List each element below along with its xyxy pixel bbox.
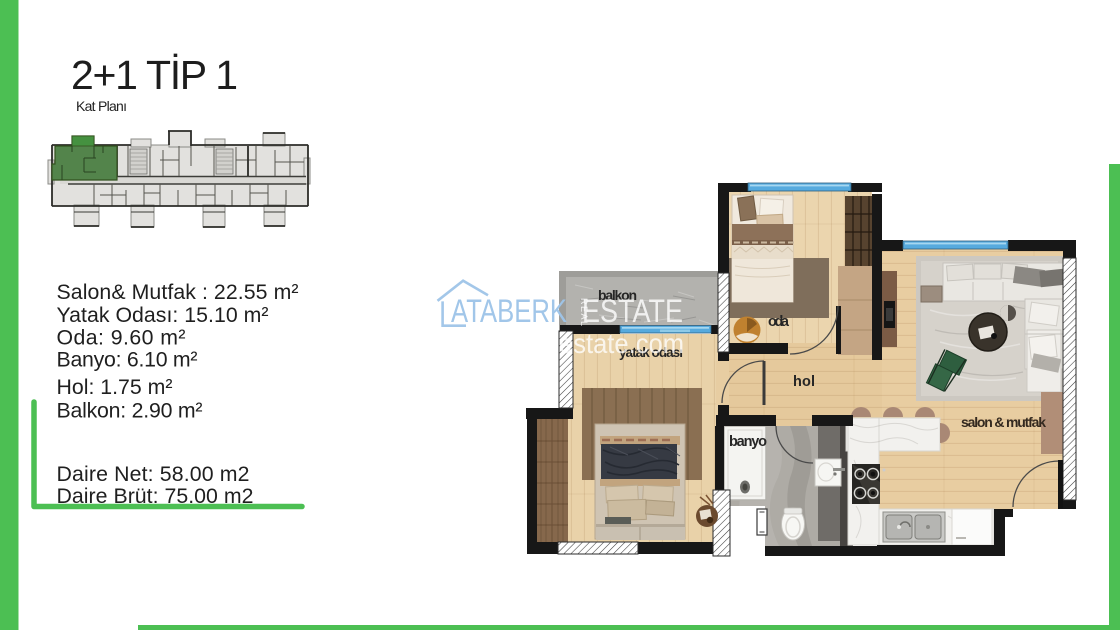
svg-text:Balkon: 2.90 m²: Balkon: 2.90 m² xyxy=(57,398,203,422)
svg-text:Yatak Odası: 15.10 m²: Yatak Odası: 15.10 m² xyxy=(57,303,269,327)
svg-text:Oda: 9.60 m²: Oda: 9.60 m² xyxy=(57,326,186,350)
svg-text:Salon& Mutfak : 22.55 m²: Salon& Mutfak : 22.55 m² xyxy=(57,280,299,304)
svg-text:oda: oda xyxy=(768,314,790,330)
svg-text:ATABERK: ATABERK xyxy=(451,293,567,329)
svg-text:Hol: 1.75 m²: Hol: 1.75 m² xyxy=(57,375,173,399)
svg-text:Daire Net: 58.00 m2: Daire Net: 58.00 m2 xyxy=(57,462,250,486)
svg-text:2+1 TİP 1: 2+1 TİP 1 xyxy=(71,52,238,98)
svg-text:hol: hol xyxy=(793,374,815,390)
svg-text:banyo: banyo xyxy=(729,434,767,450)
svg-text:Banyo: 6.10 m²: Banyo: 6.10 m² xyxy=(57,347,198,371)
svg-text:salon & mutfak: salon & mutfak xyxy=(961,414,1046,430)
svg-text:ESTATE: ESTATE xyxy=(582,293,683,329)
svg-text:estate.com: estate.com xyxy=(559,328,684,359)
svg-text:Kat Planı: Kat Planı xyxy=(76,98,127,114)
